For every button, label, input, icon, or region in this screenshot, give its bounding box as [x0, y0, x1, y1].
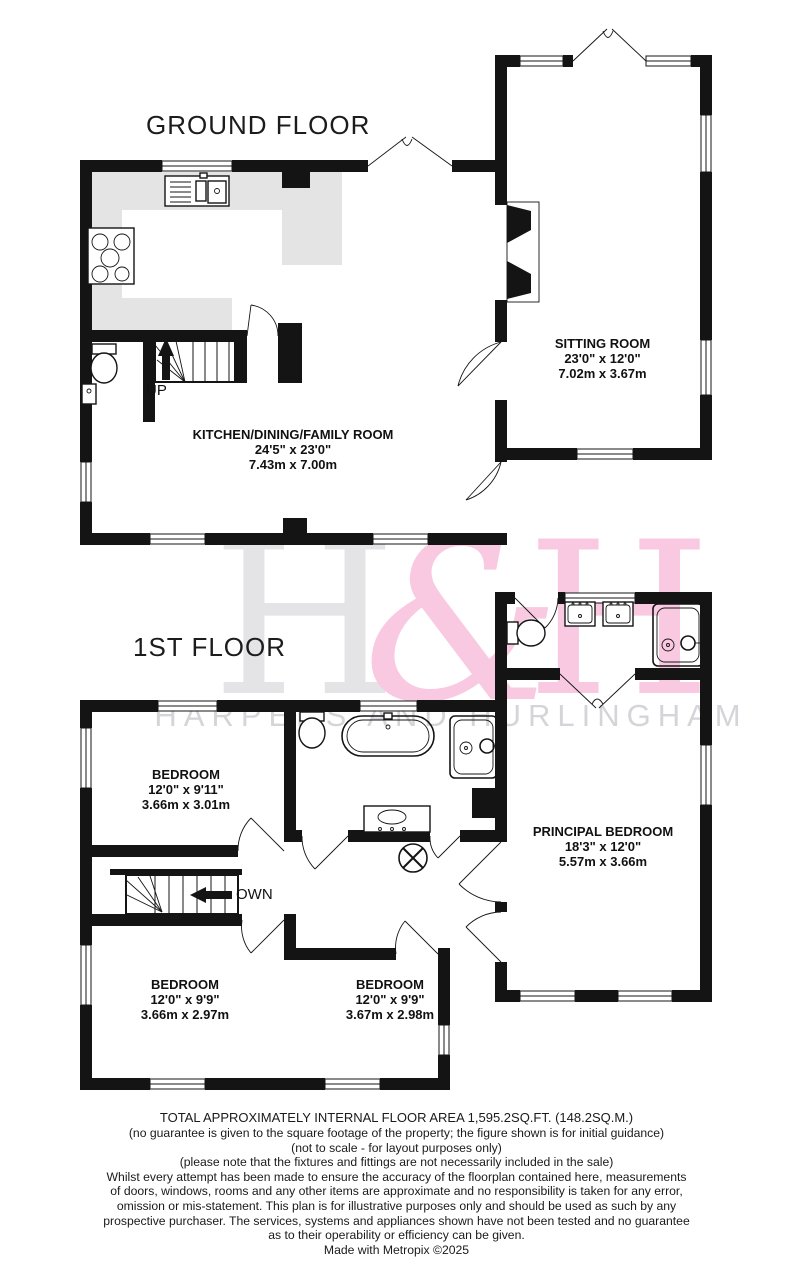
room-dims-imperial: 12'0" x 9'9" — [105, 992, 265, 1007]
bathroom-toilet — [299, 712, 325, 748]
room-dims-imperial: 12'0" x 9'9" — [310, 992, 470, 1007]
room-name: KITCHEN/DINING/FAMILY ROOM — [190, 427, 396, 442]
room-dims-metric: 7.43m x 7.00m — [190, 457, 396, 472]
disclaimer-line: omission or mis-statement. This plan is … — [0, 1199, 793, 1214]
ceiling-light-icon — [399, 844, 427, 872]
principal-bedroom-label: PRINCIPAL BEDROOM 18'3" x 12'0" 5.57m x … — [508, 824, 698, 869]
disclaimer-line: of doors, windows, rooms and any other i… — [0, 1184, 793, 1199]
wc-toilet — [91, 344, 117, 383]
room-dims-metric: 3.66m x 3.01m — [106, 797, 266, 812]
disclaimer-line: Whilst every attempt has been made to en… — [0, 1170, 793, 1185]
bedroom3-label: BEDROOM 12'0" x 9'9" 3.67m x 2.98m — [310, 977, 470, 1022]
stairs-down — [126, 875, 238, 914]
room-name: PRINCIPAL BEDROOM — [508, 824, 698, 839]
disclaimer-line: prospective purchaser. The services, sys… — [0, 1214, 793, 1229]
disclaimer-line: (no guarantee is given to the square foo… — [0, 1126, 793, 1141]
floorplan-page: H&H HARPERS AND HURLINGHAM — [0, 0, 793, 1280]
total-floor-area: TOTAL APPROXIMATELY INTERNAL FLOOR AREA … — [0, 1110, 793, 1126]
stairs-up-label: UP — [146, 382, 167, 399]
first-floor-title: 1ST FLOOR — [133, 632, 286, 663]
disclaimer-line: as to their operability or efficiency ca… — [0, 1228, 793, 1243]
metropix-credit: Made with Metropix ©2025 — [0, 1243, 793, 1258]
room-dims-imperial: 12'0" x 9'11" — [106, 782, 266, 797]
room-dims-metric: 3.66m x 2.97m — [105, 1007, 265, 1022]
kitchen-label: KITCHEN/DINING/FAMILY ROOM 24'5" x 23'0"… — [190, 427, 396, 472]
room-dims-metric: 3.67m x 2.98m — [310, 1007, 470, 1022]
hob — [88, 228, 134, 284]
disclaimer-line: (please note that the fixtures and fitti… — [0, 1155, 793, 1170]
bathroom-vanity — [364, 806, 430, 832]
room-dims-imperial: 23'0" x 12'0" — [505, 351, 700, 366]
bathroom-shower — [450, 716, 498, 778]
floorplan-drawing — [0, 0, 793, 1280]
room-name: BEDROOM — [106, 767, 266, 782]
bedroom2-label: BEDROOM 12'0" x 9'9" 3.66m x 2.97m — [105, 977, 265, 1022]
fireplace — [507, 202, 539, 302]
ground-floor-plan — [80, 29, 712, 545]
ensuite-toilet — [507, 620, 545, 646]
room-dims-imperial: 18'3" x 12'0" — [508, 839, 698, 854]
footer-disclaimer: TOTAL APPROXIMATELY INTERNAL FLOOR AREA … — [0, 1110, 793, 1257]
room-dims-metric: 7.02m x 3.67m — [505, 366, 700, 381]
first-floor-doors — [238, 598, 635, 962]
room-name: SITTING ROOM — [505, 336, 700, 351]
stairs-up — [155, 338, 235, 382]
ensuite-basins — [565, 602, 633, 626]
room-dims-imperial: 24'5" x 23'0" — [190, 442, 396, 457]
disclaimer-line: (not to scale - for layout purposes only… — [0, 1141, 793, 1156]
room-name: BEDROOM — [105, 977, 265, 992]
sitting-room-label: SITTING ROOM 23'0" x 12'0" 7.02m x 3.67m — [505, 336, 700, 381]
room-name: BEDROOM — [310, 977, 470, 992]
kitchen-sink — [165, 173, 229, 206]
room-dims-metric: 5.57m x 3.66m — [508, 854, 698, 869]
ground-floor-title: GROUND FLOOR — [146, 110, 370, 141]
wc-basin — [82, 384, 96, 404]
stairs-down-label: OWN — [236, 886, 273, 903]
bathtub — [342, 713, 434, 756]
ensuite-shower — [653, 604, 703, 666]
bedroom1-label: BEDROOM 12'0" x 9'11" 3.66m x 3.01m — [106, 767, 266, 812]
